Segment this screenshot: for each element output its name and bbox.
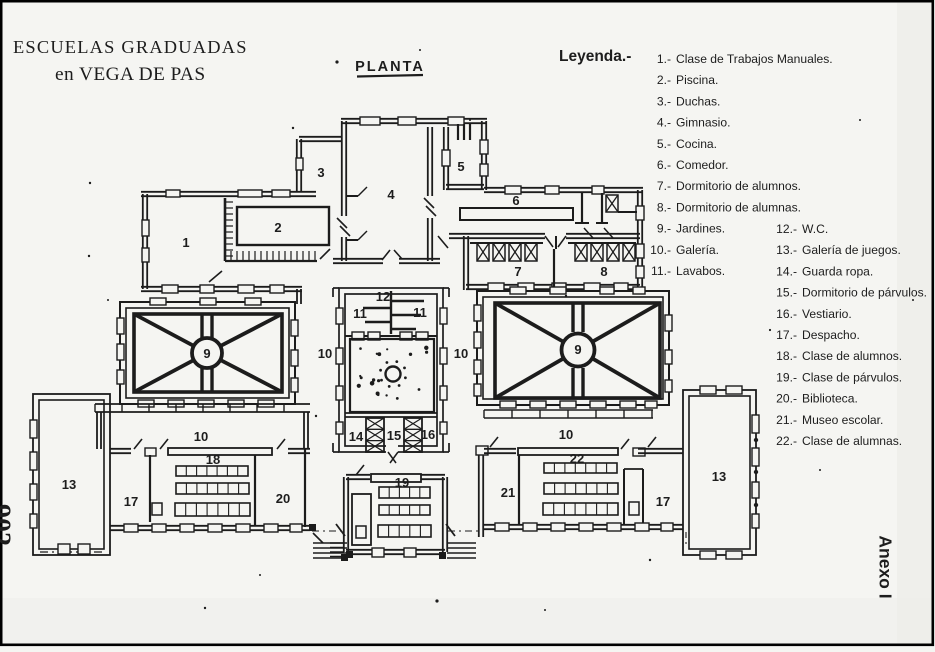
svg-text:17.-: 17.-: [776, 328, 797, 342]
svg-text:5: 5: [457, 159, 464, 174]
svg-text:21.-: 21.-: [776, 413, 797, 427]
svg-text:7: 7: [514, 264, 521, 279]
svg-text:11: 11: [413, 305, 427, 320]
svg-text:11: 11: [353, 306, 367, 321]
svg-text:21: 21: [501, 485, 515, 500]
svg-text:15.-: 15.-: [776, 286, 797, 300]
svg-text:PLANTA: PLANTA: [355, 59, 425, 75]
svg-text:18: 18: [206, 452, 220, 467]
svg-text:ESCUELAS GRADUADAS: ESCUELAS GRADUADAS: [13, 37, 248, 57]
svg-text:17: 17: [124, 494, 138, 509]
svg-text:Comedor.: Comedor.: [676, 158, 728, 172]
svg-text:Dormitorio de alumnas.: Dormitorio de alumnas.: [676, 200, 801, 214]
svg-text:9: 9: [574, 342, 581, 357]
svg-text:Anexo I: Anexo I: [876, 535, 896, 598]
svg-text:8.-: 8.-: [657, 200, 671, 214]
svg-text:13: 13: [712, 469, 726, 484]
svg-text:13.-: 13.-: [776, 243, 797, 257]
svg-text:9: 9: [203, 346, 210, 361]
svg-text:3.-: 3.-: [657, 94, 671, 108]
svg-text:Jardines.: Jardines.: [676, 222, 725, 236]
svg-text:10: 10: [454, 346, 468, 361]
svg-text:8: 8: [600, 264, 607, 279]
svg-text:Clase de párvulos.: Clase de párvulos.: [802, 370, 902, 384]
svg-text:Guarda ropa.: Guarda ropa.: [802, 264, 873, 278]
svg-text:Gimnasio.: Gimnasio.: [676, 116, 730, 130]
svg-text:2: 2: [274, 220, 281, 235]
svg-text:6.-: 6.-: [657, 158, 671, 172]
svg-text:2.-: 2.-: [657, 73, 671, 87]
svg-text:22: 22: [570, 451, 584, 466]
svg-text:1.-: 1.-: [657, 52, 671, 66]
svg-text:W.C.: W.C.: [802, 222, 828, 236]
svg-text:Dormitorio de párvulos.: Dormitorio de párvulos.: [802, 286, 927, 300]
svg-text:Cocina.: Cocina.: [676, 137, 717, 151]
svg-text:Lavabos.: Lavabos.: [676, 264, 725, 278]
svg-text:Vestiario.: Vestiario.: [802, 307, 852, 321]
svg-text:4: 4: [387, 187, 395, 202]
svg-text:Dormitorio de alumnos.: Dormitorio de alumnos.: [676, 179, 801, 193]
svg-text:Despacho.: Despacho.: [802, 328, 860, 342]
svg-text:20: 20: [276, 491, 290, 506]
svg-text:6: 6: [512, 193, 519, 208]
svg-text:9.-: 9.-: [657, 222, 671, 236]
svg-text:902: 902: [0, 504, 16, 546]
svg-text:16.-: 16.-: [776, 307, 797, 321]
svg-text:13: 13: [62, 477, 76, 492]
svg-text:Galería.: Galería.: [676, 243, 719, 257]
svg-text:19: 19: [395, 475, 409, 490]
svg-text:15: 15: [387, 428, 401, 443]
svg-text:14.-: 14.-: [776, 264, 797, 278]
svg-text:Clase de alumnas.: Clase de alumnas.: [802, 434, 902, 448]
svg-text:14: 14: [349, 429, 364, 444]
svg-text:4.-: 4.-: [657, 116, 671, 130]
svg-text:16: 16: [421, 427, 435, 442]
svg-text:3: 3: [317, 165, 324, 180]
svg-text:11.-: 11.-: [651, 264, 671, 278]
svg-text:20.-: 20.-: [776, 392, 797, 406]
svg-text:22.-: 22.-: [776, 434, 797, 448]
svg-text:Clase de Trabajos Manuales.: Clase de Trabajos Manuales.: [676, 52, 833, 66]
svg-text:5.-: 5.-: [657, 137, 671, 151]
svg-text:17: 17: [656, 494, 670, 509]
svg-text:Piscina.: Piscina.: [676, 73, 718, 87]
svg-text:Biblioteca.: Biblioteca.: [802, 392, 858, 406]
svg-text:19.-: 19.-: [776, 370, 797, 384]
svg-text:10: 10: [318, 346, 332, 361]
svg-text:12: 12: [376, 289, 390, 304]
svg-text:Leyenda.-: Leyenda.-: [559, 48, 631, 65]
svg-text:7.-: 7.-: [657, 179, 671, 193]
svg-text:1: 1: [182, 235, 189, 250]
svg-text:10: 10: [559, 427, 573, 442]
svg-text:10: 10: [194, 429, 208, 444]
svg-text:12.-: 12.-: [776, 222, 797, 236]
svg-text:Museo escolar.: Museo escolar.: [802, 413, 883, 427]
svg-text:Clase de alumnos.: Clase de alumnos.: [802, 349, 902, 363]
svg-text:10.-: 10.-: [650, 243, 671, 257]
svg-text:18.-: 18.-: [776, 349, 797, 363]
svg-text:Galería de juegos.: Galería de juegos.: [802, 243, 901, 257]
svg-text:en VEGA DE PAS: en VEGA DE PAS: [55, 64, 206, 85]
svg-text:Duchas.: Duchas.: [676, 94, 720, 108]
